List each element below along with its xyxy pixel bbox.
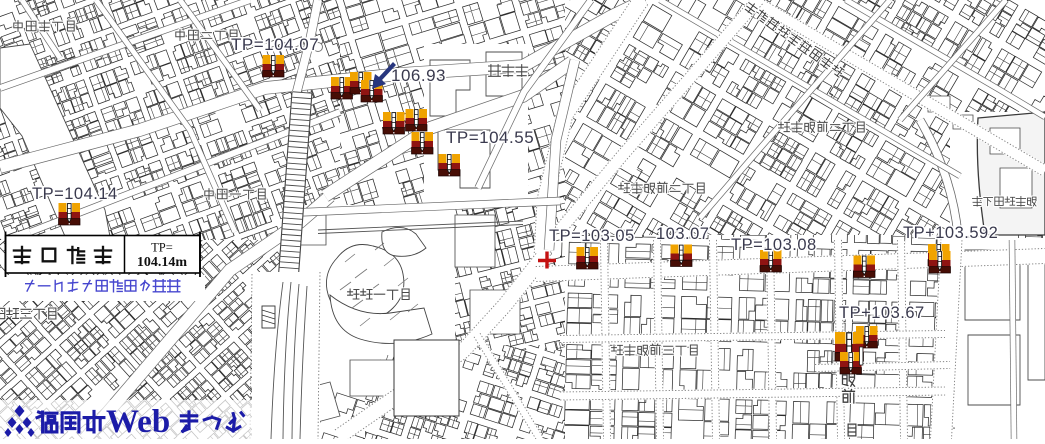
svg-text:TP=104.55: TP=104.55 [446,128,534,147]
svg-text:TP=104.14: TP=104.14 [32,185,118,203]
svg-text:104.14m: 104.14m [137,255,188,270]
svg-text:TP=: TP= [151,241,173,255]
svg-text:103.07: 103.07 [656,225,709,243]
svg-text:TP+103.592: TP+103.592 [903,224,998,242]
svg-text:TP=104.07: TP=104.07 [231,35,319,54]
svg-text:TP+103.67: TP+103.67 [839,304,925,322]
svg-text:Web: Web [106,404,170,439]
svg-text:TP=103.05: TP=103.05 [549,227,635,245]
svg-text:106.93: 106.93 [391,66,446,85]
svg-text:TP=103.08: TP=103.08 [731,236,817,254]
